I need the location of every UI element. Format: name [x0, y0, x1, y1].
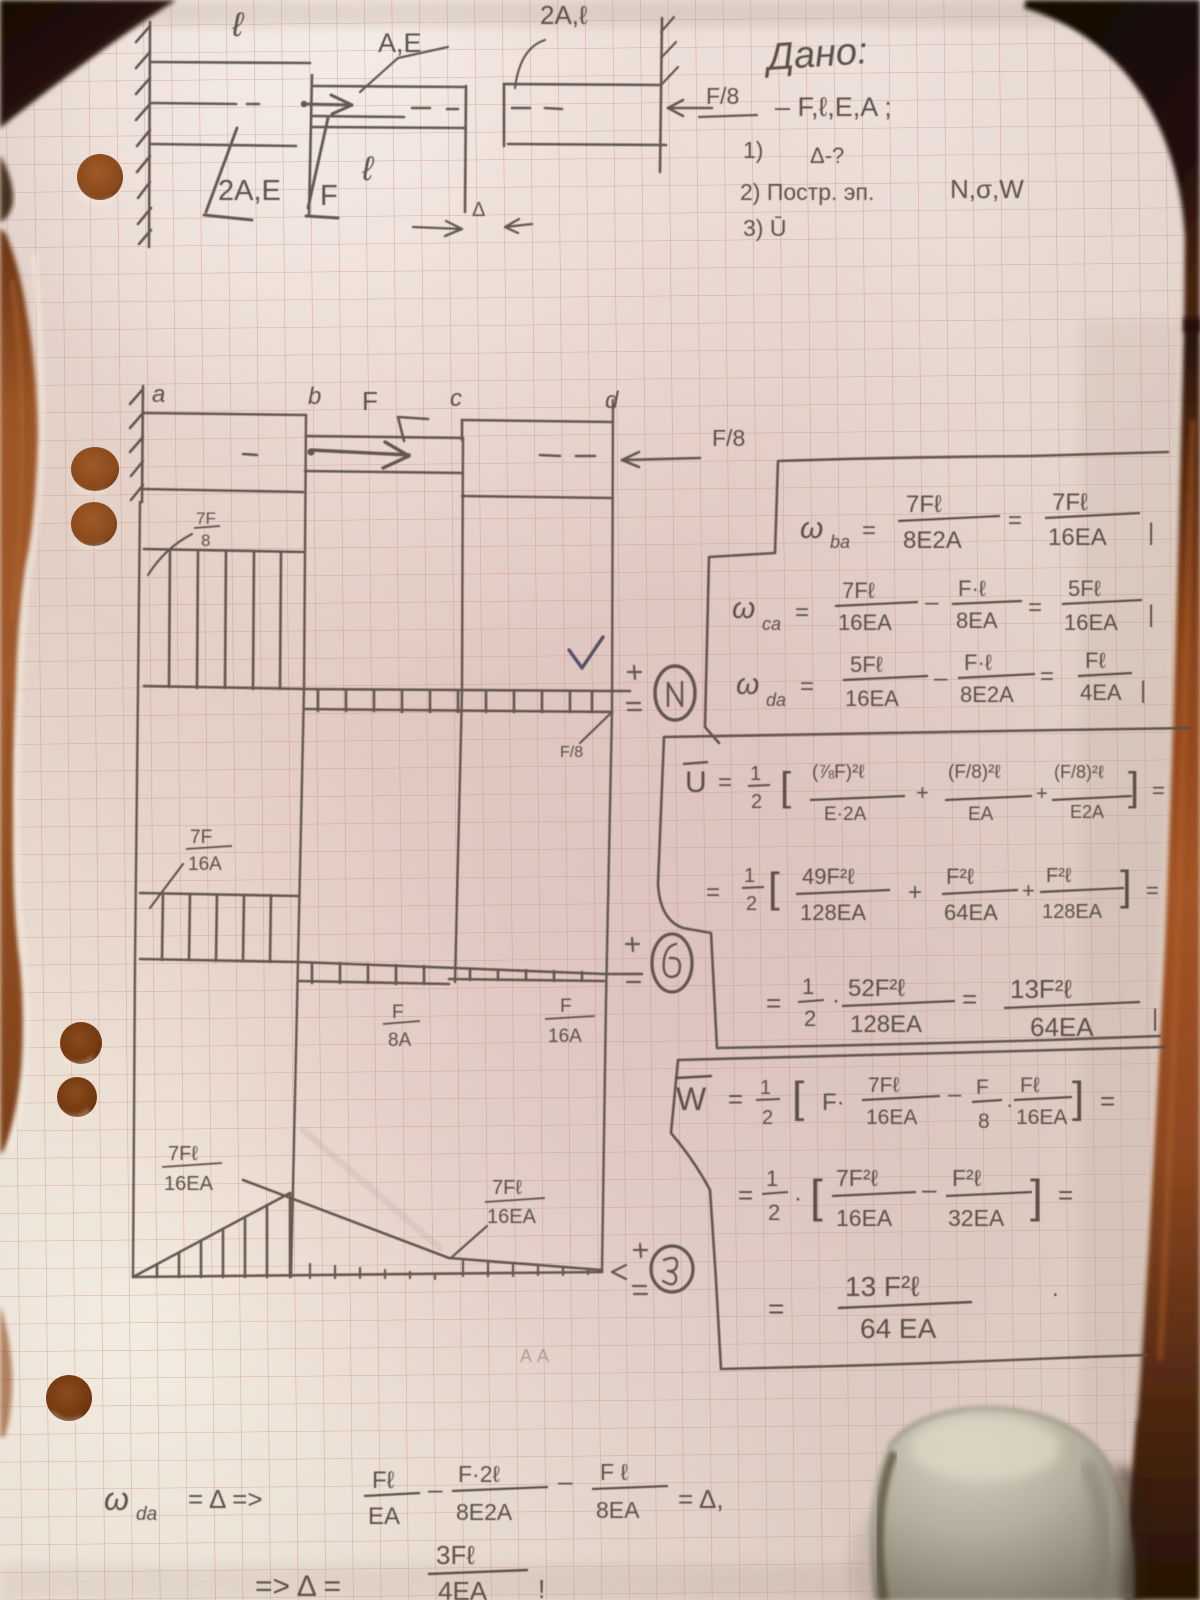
svg-text:]: ] [1128, 765, 1139, 809]
svg-text:8E2A: 8E2A [960, 682, 1014, 707]
svg-text:=: = [1028, 594, 1042, 621]
svg-text:F: F [320, 180, 338, 212]
svg-text:7Fℓ: 7Fℓ [842, 578, 876, 603]
svg-text:=: = [1146, 878, 1159, 903]
svg-text:49F²ℓ: 49F²ℓ [802, 864, 855, 889]
svg-text:N,σ,W: N,σ,W [950, 174, 1024, 204]
svg-text:F²ℓ: F²ℓ [1046, 865, 1072, 887]
svg-text:1: 1 [766, 1166, 778, 1191]
svg-text:13 F²ℓ: 13 F²ℓ [845, 1271, 919, 1302]
svg-text:[: [ [768, 864, 780, 911]
svg-text:3Fℓ: 3Fℓ [436, 1540, 475, 1570]
svg-text:128EA: 128EA [850, 1011, 922, 1038]
svg-text:7Fℓ: 7Fℓ [906, 491, 942, 518]
svg-text:Fℓ: Fℓ [1020, 1074, 1040, 1097]
svg-text:1): 1) [743, 137, 763, 163]
svg-text:=: = [795, 599, 809, 626]
svg-text:F: F [976, 1076, 989, 1099]
svg-text:F/8: F/8 [706, 83, 739, 109]
svg-text:EA: EA [368, 1503, 400, 1530]
svg-text:2: 2 [746, 893, 757, 915]
svg-text:2: 2 [751, 791, 762, 813]
svg-text:+: + [1022, 878, 1035, 903]
svg-text:ba: ba [830, 532, 850, 552]
svg-text:2: 2 [768, 1200, 780, 1225]
svg-text:7F: 7F [196, 509, 216, 528]
svg-text:–: – [948, 1081, 962, 1108]
svg-text:8EA: 8EA [596, 1497, 640, 1523]
svg-text:[: [ [810, 1170, 823, 1222]
svg-text:!: ! [538, 1574, 545, 1600]
svg-text:2) Постр. эп.: 2) Постр. эп. [740, 179, 874, 205]
svg-text:16EA: 16EA [866, 1106, 917, 1129]
svg-text:3) Ū: 3) Ū [743, 215, 786, 241]
svg-text:ω: ω [800, 512, 823, 545]
svg-text:2A,E: 2A,E [218, 175, 281, 207]
svg-text:64EA: 64EA [944, 900, 998, 925]
svg-text:16EA: 16EA [838, 610, 892, 635]
svg-text:a: a [152, 381, 165, 408]
svg-text:5Fℓ: 5Fℓ [1068, 576, 1102, 601]
svg-text:64EA: 64EA [1030, 1012, 1094, 1042]
svg-text:8A: 8A [388, 1030, 412, 1051]
svg-text:·: · [1006, 1092, 1013, 1117]
svg-text:–: – [558, 1466, 573, 1496]
svg-text:13F²ℓ: 13F²ℓ [1010, 974, 1072, 1004]
svg-text:]: ] [1030, 1170, 1043, 1222]
svg-text:4EA: 4EA [438, 1576, 488, 1600]
svg-text:Fℓ: Fℓ [1085, 648, 1106, 673]
svg-text:52F²ℓ: 52F²ℓ [848, 975, 905, 1002]
svg-text:.: . [1052, 1275, 1059, 1302]
svg-text:1: 1 [802, 974, 814, 999]
svg-text:Fℓ: Fℓ [372, 1467, 395, 1494]
svg-text:F ℓ: F ℓ [600, 1459, 628, 1485]
svg-text:2: 2 [762, 1107, 773, 1129]
svg-text:8E2A: 8E2A [456, 1499, 513, 1525]
svg-text:]: ] [1120, 862, 1132, 909]
svg-text:7Fℓ: 7Fℓ [1052, 489, 1088, 516]
svg-text:EA: EA [968, 804, 994, 825]
svg-text:(⅞F)²ℓ: (⅞F)²ℓ [812, 762, 865, 783]
svg-text:|: | [1148, 601, 1154, 628]
svg-text:=: = [718, 769, 732, 796]
svg-text:da: da [136, 1504, 157, 1525]
svg-text:=: = [728, 1084, 743, 1114]
svg-text:128EA: 128EA [1042, 901, 1103, 923]
svg-text:= Δ,: = Δ, [678, 1484, 724, 1514]
svg-text:=: = [800, 673, 814, 700]
svg-text:Δ: Δ [472, 199, 485, 221]
svg-text:8: 8 [201, 531, 210, 550]
svg-text:|: | [1148, 519, 1154, 546]
svg-text:1: 1 [744, 865, 755, 887]
svg-text:8: 8 [978, 1110, 990, 1133]
svg-text:F/8: F/8 [712, 425, 745, 451]
svg-text:da: da [766, 690, 786, 710]
svg-text:А А: А А [520, 1346, 549, 1366]
svg-text:[: [ [780, 765, 791, 809]
svg-text:16EA: 16EA [164, 1173, 214, 1195]
svg-text:16EA: 16EA [1048, 524, 1107, 551]
svg-text:Дано:: Дано: [762, 30, 869, 79]
svg-text:16A: 16A [188, 854, 222, 875]
svg-text:·: · [832, 987, 840, 1014]
svg-text:=: = [1152, 778, 1165, 803]
svg-text:|: | [1152, 1005, 1158, 1032]
svg-text:+: + [1036, 783, 1048, 805]
svg-text:E·2A: E·2A [824, 804, 867, 825]
svg-text:7Fℓ: 7Fℓ [492, 1177, 522, 1199]
svg-text:d: d [605, 387, 619, 414]
svg-text:+: + [916, 780, 929, 805]
svg-text:=: = [706, 879, 720, 906]
svg-text:16EA: 16EA [836, 1205, 893, 1231]
svg-text:]: ] [1072, 1073, 1084, 1122]
svg-text:F·ℓ: F·ℓ [964, 650, 993, 675]
svg-text:=: = [1008, 507, 1022, 534]
svg-text:8E2A: 8E2A [903, 527, 962, 554]
svg-text:=: = [1040, 663, 1054, 690]
svg-text:32EA: 32EA [948, 1205, 1005, 1231]
svg-text:(F/8)²ℓ: (F/8)²ℓ [1054, 762, 1104, 782]
svg-text:–: – [925, 589, 939, 616]
svg-text:F²ℓ: F²ℓ [952, 1165, 982, 1191]
svg-text:64 EA: 64 EA [860, 1313, 937, 1344]
svg-text:7Fℓ: 7Fℓ [868, 1074, 900, 1097]
svg-text:F/8: F/8 [560, 744, 583, 761]
svg-text:ℓ: ℓ [231, 6, 245, 44]
svg-text:1: 1 [750, 763, 761, 785]
svg-text:16EA: 16EA [487, 1206, 537, 1228]
svg-text:128EA: 128EA [800, 900, 866, 925]
svg-text:ca: ca [762, 614, 781, 634]
svg-text:7F: 7F [190, 827, 212, 848]
svg-text:F·ℓ: F·ℓ [958, 576, 987, 601]
svg-text:=: = [862, 517, 876, 544]
svg-text:– F,ℓ,E,A ;: – F,ℓ,E,A ; [775, 92, 892, 122]
svg-text:E2A: E2A [1070, 802, 1104, 822]
svg-text:–: – [934, 665, 948, 692]
svg-text:–: – [922, 1174, 937, 1204]
svg-text:7Fℓ: 7Fℓ [168, 1143, 198, 1165]
svg-text:A,E: A,E [378, 28, 422, 58]
svg-text:= Δ =>: = Δ => [188, 1484, 263, 1514]
svg-text:4EA: 4EA [1080, 680, 1122, 705]
svg-text:2A,ℓ: 2A,ℓ [540, 0, 588, 30]
svg-text:F²ℓ: F²ℓ [946, 864, 975, 889]
svg-text:16EA: 16EA [845, 686, 899, 711]
svg-text:=: = [1058, 1180, 1073, 1210]
svg-text:7F²ℓ: 7F²ℓ [836, 1165, 879, 1191]
svg-text:=> Δ =: => Δ = [255, 1570, 341, 1600]
svg-text:+: + [908, 879, 922, 906]
svg-text:2: 2 [804, 1006, 816, 1031]
svg-text:U: U [685, 766, 707, 799]
svg-text:[: [ [792, 1073, 804, 1122]
svg-text:ω: ω [732, 592, 755, 625]
svg-text:16EA: 16EA [1064, 610, 1118, 635]
svg-text:|: | [1140, 677, 1146, 704]
svg-text:=: = [738, 1180, 753, 1210]
svg-text:16EA: 16EA [1016, 1106, 1067, 1129]
svg-text:–: – [428, 1474, 443, 1504]
svg-text:F: F [560, 996, 572, 1017]
svg-text:b: b [308, 383, 321, 410]
svg-text:ω: ω [104, 1481, 129, 1517]
svg-text:c: c [450, 385, 462, 412]
svg-text:F: F [392, 1002, 404, 1023]
svg-text:Δ-?: Δ-? [810, 143, 844, 168]
svg-text:ω: ω [736, 668, 759, 701]
svg-text:=: = [766, 988, 781, 1018]
svg-text:=: = [768, 1293, 784, 1324]
svg-text:=: = [1100, 1086, 1115, 1116]
svg-text:·: · [794, 1185, 802, 1212]
svg-text:16A: 16A [548, 1026, 582, 1047]
svg-text:F·2ℓ: F·2ℓ [458, 1461, 501, 1487]
svg-text:F: F [362, 386, 378, 416]
svg-text:1: 1 [760, 1077, 771, 1099]
svg-text:ℓ: ℓ [361, 150, 375, 188]
svg-text:8EA: 8EA [956, 608, 998, 633]
svg-text:5Fℓ: 5Fℓ [850, 652, 884, 677]
svg-text:W: W [676, 1081, 707, 1117]
svg-text:F·: F· [822, 1089, 845, 1116]
svg-text:(F/8)²ℓ: (F/8)²ℓ [948, 762, 1001, 783]
svg-text:=: = [962, 984, 977, 1014]
